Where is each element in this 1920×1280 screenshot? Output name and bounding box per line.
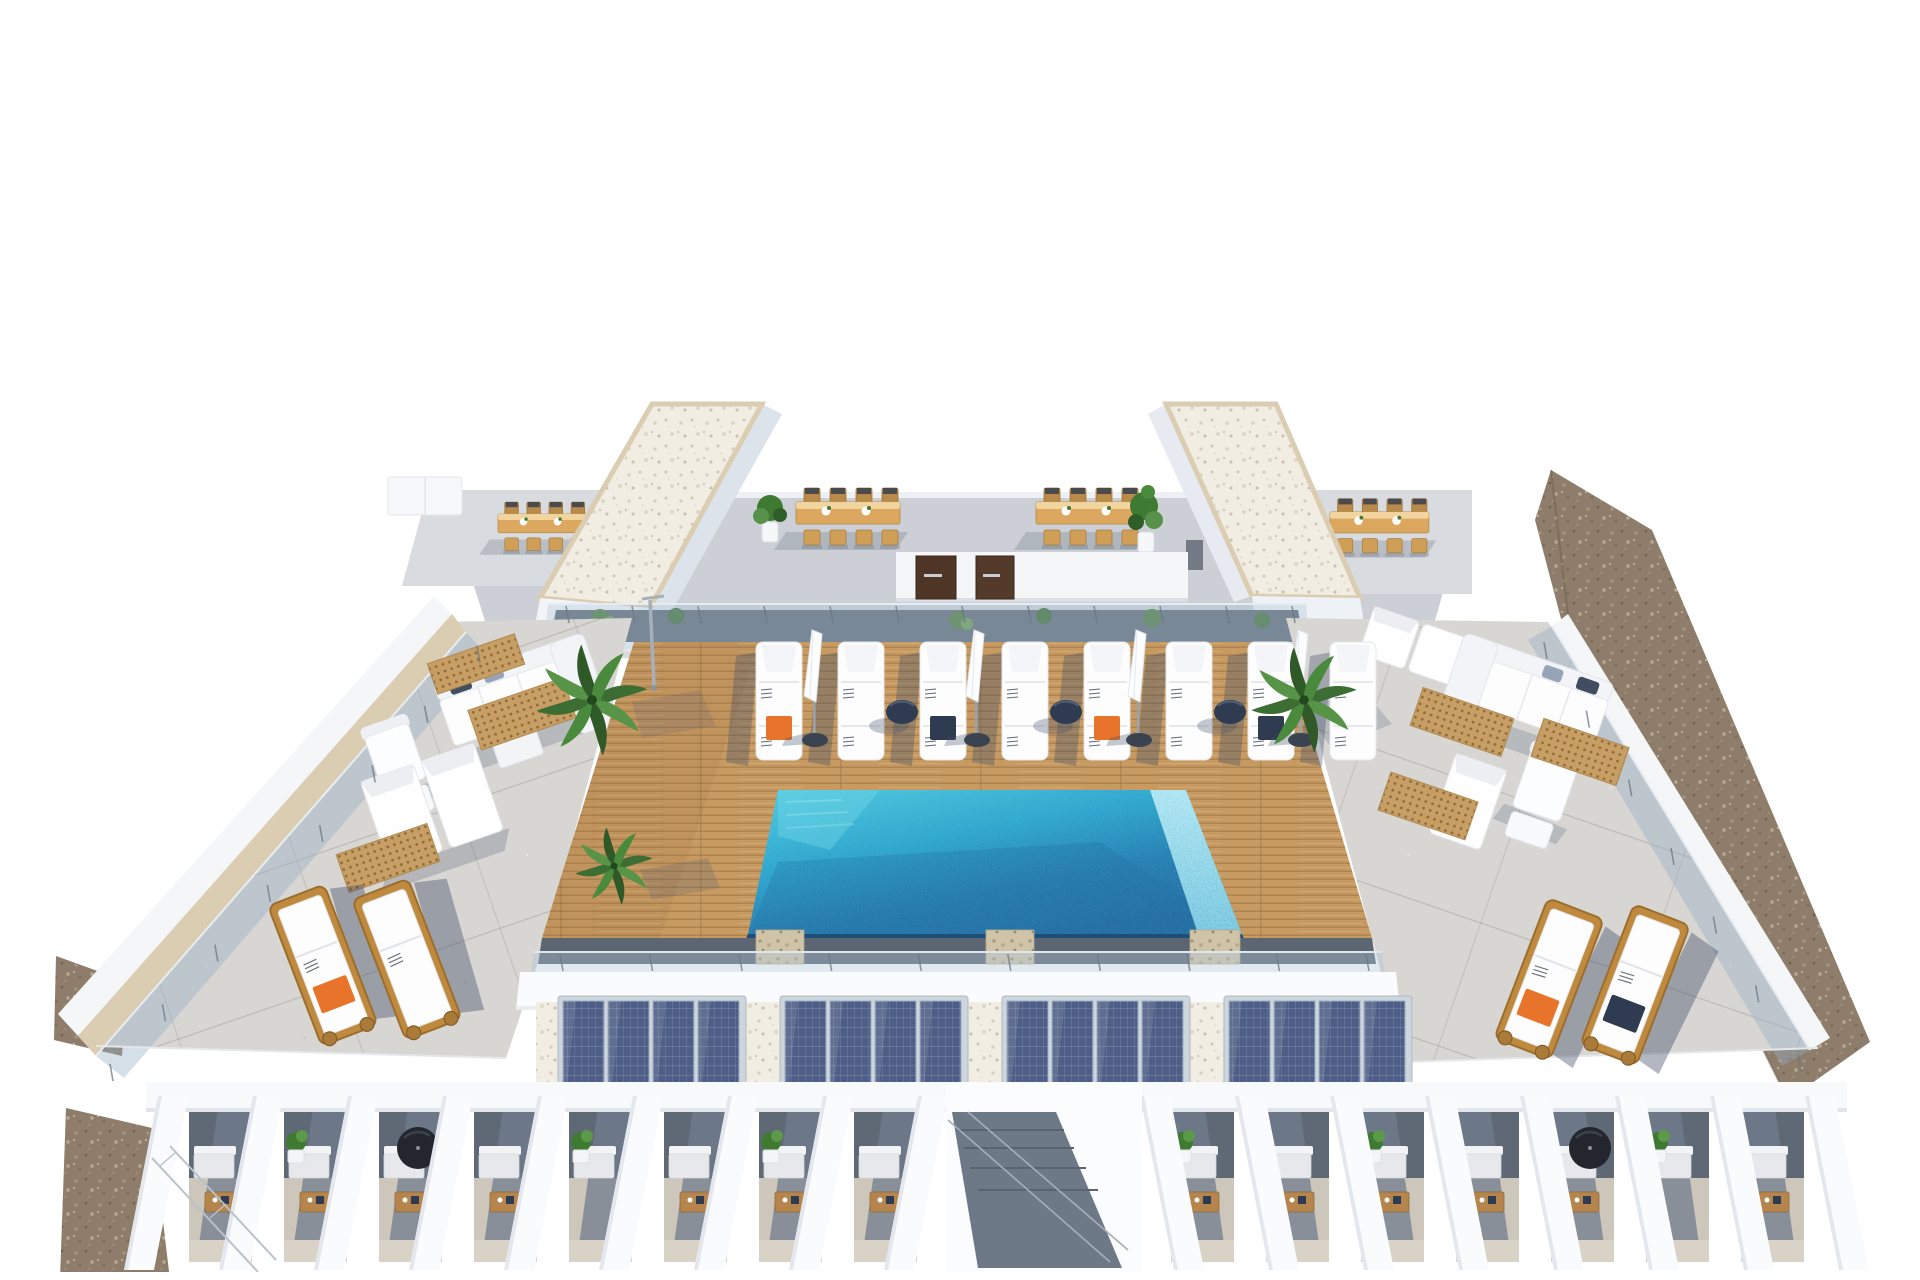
door-handle bbox=[924, 574, 942, 577]
back-wall bbox=[896, 552, 1188, 606]
towel-navy bbox=[930, 716, 956, 740]
sun-lounger bbox=[1136, 642, 1212, 766]
sun-lounger bbox=[972, 642, 1048, 766]
towel-orange bbox=[1094, 716, 1120, 740]
access-door bbox=[976, 556, 1014, 599]
swimming-pool bbox=[744, 790, 1246, 944]
stair-gap bbox=[946, 1082, 1142, 1280]
rooftop-render-stage bbox=[0, 0, 1920, 1280]
access-door bbox=[916, 556, 956, 599]
door-handle bbox=[983, 574, 1000, 577]
sun-lounger bbox=[726, 642, 802, 766]
tower-vent bbox=[1186, 540, 1203, 570]
towel-orange bbox=[766, 716, 792, 740]
rooftop-3d-render bbox=[0, 0, 1920, 1280]
